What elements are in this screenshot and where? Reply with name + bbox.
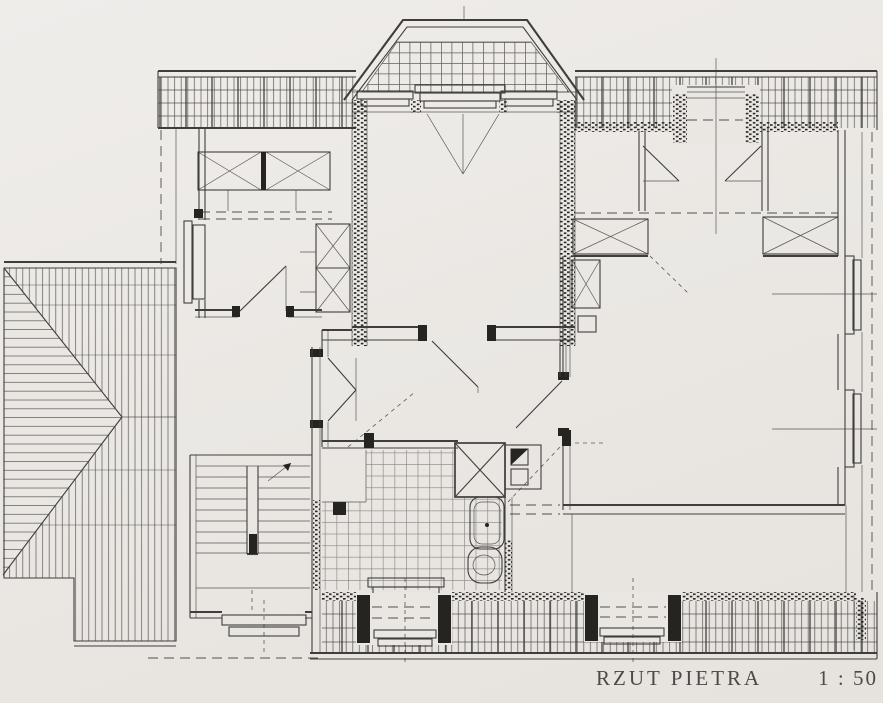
window-north-right: [501, 91, 557, 106]
window-stair-south: [222, 600, 306, 656]
floor-plan-drawing: [0, 0, 883, 703]
window-east-1: [772, 256, 877, 334]
wardrobe-left: [573, 219, 648, 256]
roof-strip-top-right: [575, 58, 877, 592]
water-heater: [505, 445, 541, 489]
title-block: RZUT PIETRA 1 : 50: [596, 666, 878, 696]
floor-plan-sheet: RZUT PIETRA 1 : 50: [0, 0, 883, 703]
room-north-west: [184, 128, 350, 318]
roof-strip-top-left: [158, 71, 356, 264]
wardrobe-right: [763, 217, 838, 256]
room-central: [352, 85, 575, 393]
drawing-title: RZUT PIETRA: [596, 666, 762, 691]
roof-strip-south: [310, 578, 877, 662]
hip-roof-west: [3, 262, 176, 646]
drawing-scale: 1 : 50: [818, 666, 878, 691]
closets-north-east: [572, 128, 838, 332]
floor-drain: [333, 502, 346, 515]
wardrobe-column: [300, 224, 350, 312]
shower-stall: [455, 443, 505, 497]
window-east-2: [772, 390, 877, 467]
wardrobe-band-top: [198, 152, 330, 211]
bay-hip-roof: [344, 6, 584, 100]
